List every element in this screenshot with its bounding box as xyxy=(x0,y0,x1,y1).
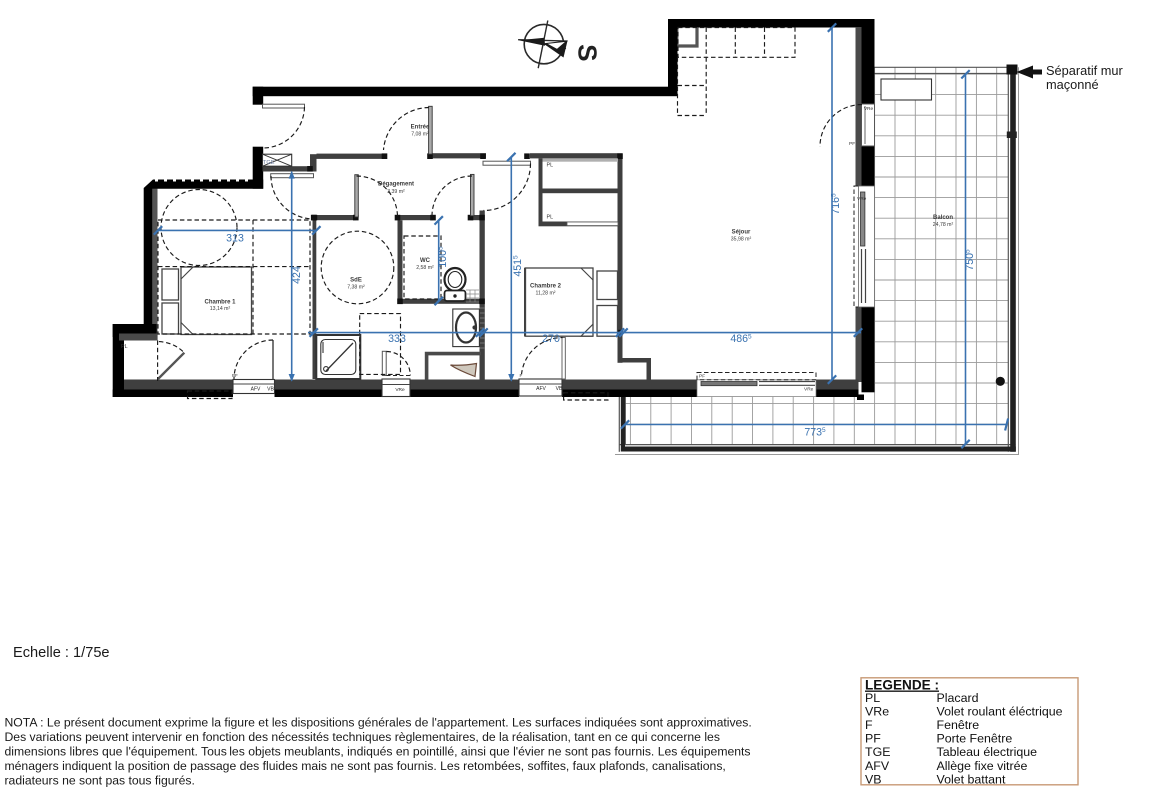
svg-text:VB: VB xyxy=(865,772,882,786)
svg-text:PF: PF xyxy=(699,374,705,380)
svg-text:dimensions libres que l'équipe: dimensions libres que l'équipement. Tous… xyxy=(5,745,751,759)
svg-text:Tableau électrique: Tableau électrique xyxy=(937,745,1038,759)
svg-text:Entrée: Entrée xyxy=(411,125,430,131)
svg-text:Allège fixe vitrée: Allège fixe vitrée xyxy=(937,759,1028,773)
svg-text:Fenêtre: Fenêtre xyxy=(937,718,980,732)
svg-text:1005: 1005 xyxy=(437,246,449,268)
svg-text:VRe: VRe xyxy=(865,705,889,719)
svg-text:Volet roulant éléctrique: Volet roulant éléctrique xyxy=(937,705,1063,719)
svg-text:7,08 m²: 7,08 m² xyxy=(411,132,429,138)
svg-text:WC: WC xyxy=(420,258,431,264)
svg-text:Chambre 1: Chambre 1 xyxy=(204,300,236,306)
svg-text:VB: VB xyxy=(267,387,274,393)
svg-text:Séparatif mur: Séparatif mur xyxy=(1046,63,1124,78)
svg-text:TGE: TGE xyxy=(263,160,275,166)
svg-text:F: F xyxy=(865,718,873,732)
svg-text:S: S xyxy=(573,44,603,61)
svg-text:AFV: AFV xyxy=(251,387,261,393)
svg-text:11,28 m²: 11,28 m² xyxy=(535,291,555,297)
svg-text:AFV: AFV xyxy=(536,386,546,392)
svg-text:Echelle : 1/75e: Echelle : 1/75e xyxy=(13,645,110,661)
svg-text:PF: PF xyxy=(232,373,238,378)
svg-text:270: 270 xyxy=(542,333,560,345)
svg-text:PL: PL xyxy=(865,691,880,705)
svg-text:2,58 m²: 2,58 m² xyxy=(416,265,434,271)
svg-text:TGE: TGE xyxy=(865,745,890,759)
svg-text:PL: PL xyxy=(121,344,128,350)
svg-text:radiateurs ne sont pas tous fi: radiateurs ne sont pas tous figurés. xyxy=(5,774,195,788)
svg-text:maçonné: maçonné xyxy=(1046,77,1099,92)
svg-text:VRe: VRe xyxy=(864,106,874,112)
svg-text:PL: PL xyxy=(547,163,554,169)
svg-text:4515: 4515 xyxy=(512,255,524,277)
svg-text:F: F xyxy=(520,373,523,378)
svg-text:Séjour: Séjour xyxy=(732,230,751,236)
svg-text:Volet battant: Volet battant xyxy=(937,772,1006,786)
svg-text:35,98 m²: 35,98 m² xyxy=(731,237,752,243)
svg-text:PF: PF xyxy=(849,141,855,147)
svg-text:313: 313 xyxy=(226,233,244,245)
svg-text:PF: PF xyxy=(865,732,881,746)
svg-text:ménagers indiquent la position: ménagers indiquent la position de passag… xyxy=(5,759,726,773)
svg-text:3,39 m²: 3,39 m² xyxy=(387,189,405,195)
svg-text:24,78 m²: 24,78 m² xyxy=(933,222,954,228)
svg-text:333: 333 xyxy=(388,333,406,345)
svg-text:Porte Fenêtre: Porte Fenêtre xyxy=(937,732,1013,746)
svg-text:AFV: AFV xyxy=(865,759,890,773)
svg-text:Dégagement: Dégagement xyxy=(378,182,414,188)
svg-text:7505: 7505 xyxy=(964,249,976,271)
svg-text:7165: 7165 xyxy=(830,193,842,215)
svg-text:SdE: SdE xyxy=(350,278,362,284)
svg-text:13,14 m²: 13,14 m² xyxy=(210,306,231,312)
svg-text:VRe: VRe xyxy=(804,387,814,393)
svg-text:PL: PL xyxy=(547,215,554,221)
svg-text:VB: VB xyxy=(556,386,563,392)
svg-text:7735: 7735 xyxy=(804,427,826,439)
svg-text:Balcon: Balcon xyxy=(933,215,953,221)
svg-text:VRe: VRe xyxy=(395,387,405,393)
svg-text:NOTA : Le présent document exp: NOTA : Le présent document exprime la fi… xyxy=(5,716,752,730)
svg-text:Des variations peuvent interve: Des variations peuvent intervenir en fon… xyxy=(5,730,720,744)
svg-text:7,38 m²: 7,38 m² xyxy=(347,285,365,291)
svg-text:Chambre 2: Chambre 2 xyxy=(530,284,562,290)
svg-text:VRe: VRe xyxy=(857,196,867,202)
svg-text:4865: 4865 xyxy=(730,333,752,345)
svg-text:424: 424 xyxy=(291,266,303,284)
svg-text:Placard: Placard xyxy=(937,691,979,705)
